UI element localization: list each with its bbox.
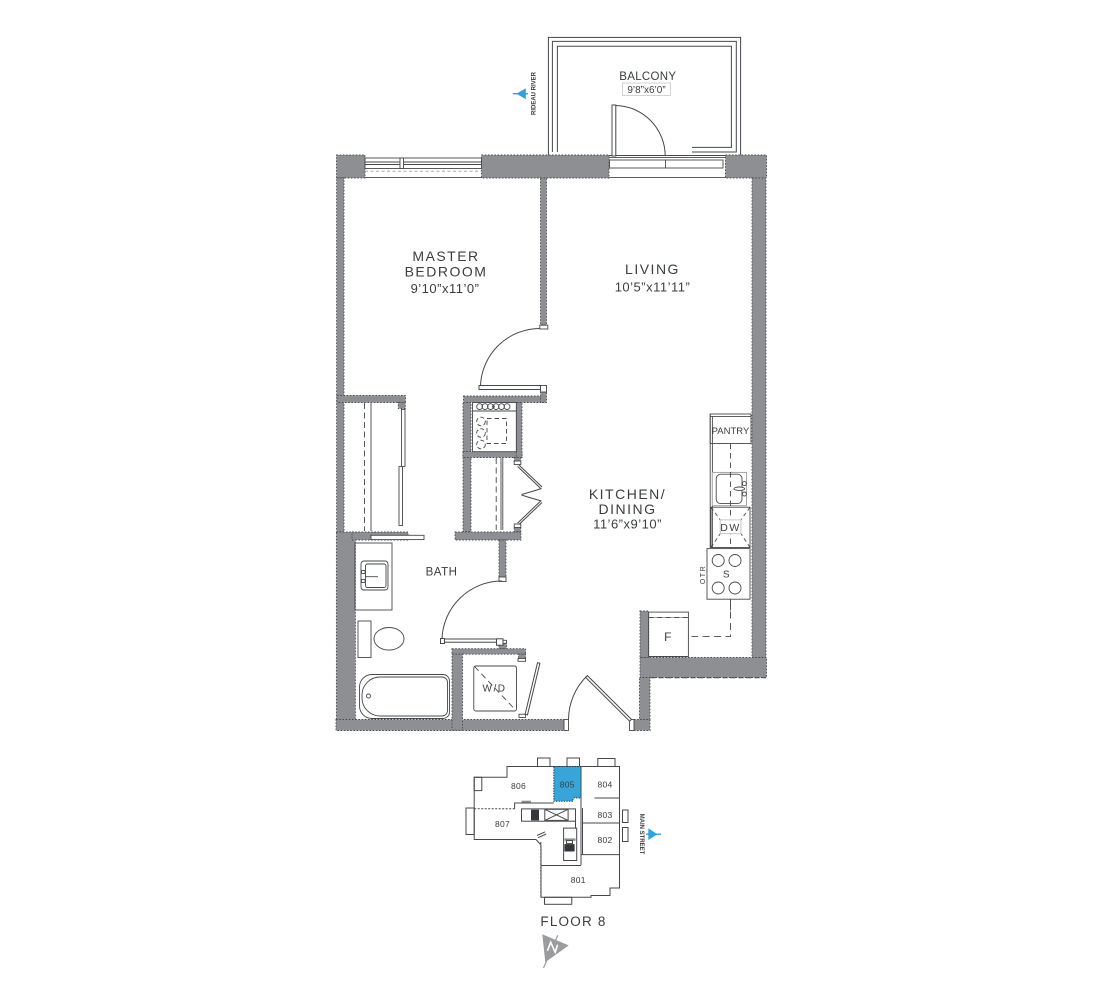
svg-text:807: 807 — [495, 819, 510, 829]
svg-text:10’5”x11’11”: 10’5”x11’11” — [615, 280, 691, 295]
svg-text:KITCHEN/: KITCHEN/ — [589, 486, 666, 502]
svg-text:S: S — [723, 570, 731, 581]
svg-text:F: F — [664, 630, 673, 644]
svg-text:11’6”x9’10”: 11’6”x9’10” — [593, 517, 662, 532]
svg-text:803: 803 — [597, 810, 612, 820]
svg-text:FLOOR 8: FLOOR 8 — [540, 914, 606, 929]
svg-text:PANTRY: PANTRY — [712, 426, 750, 437]
svg-text:805: 805 — [560, 780, 575, 790]
svg-text:BATH: BATH — [426, 567, 458, 579]
svg-text:DW: DW — [720, 522, 741, 534]
svg-text:801: 801 — [571, 875, 586, 885]
svg-text:9’10”x11’0”: 9’10”x11’0” — [411, 281, 480, 296]
svg-text:LIVING: LIVING — [625, 261, 680, 277]
svg-text:MASTER: MASTER — [412, 248, 479, 264]
svg-text:BEDROOM: BEDROOM — [405, 264, 488, 280]
svg-text:MAIN STREET: MAIN STREET — [638, 814, 644, 855]
svg-text:BALCONY: BALCONY — [619, 71, 676, 83]
svg-text:804: 804 — [597, 780, 612, 790]
svg-text:OTR: OTR — [700, 565, 707, 584]
svg-text:RIDEAU RIVER: RIDEAU RIVER — [532, 71, 538, 115]
svg-text:806: 806 — [511, 781, 526, 791]
svg-text:802: 802 — [597, 835, 612, 845]
svg-text:9’8”x6’0”: 9’8”x6’0” — [627, 85, 665, 96]
svg-text:W/D: W/D — [483, 684, 507, 695]
svg-text:DINING: DINING — [599, 501, 657, 517]
